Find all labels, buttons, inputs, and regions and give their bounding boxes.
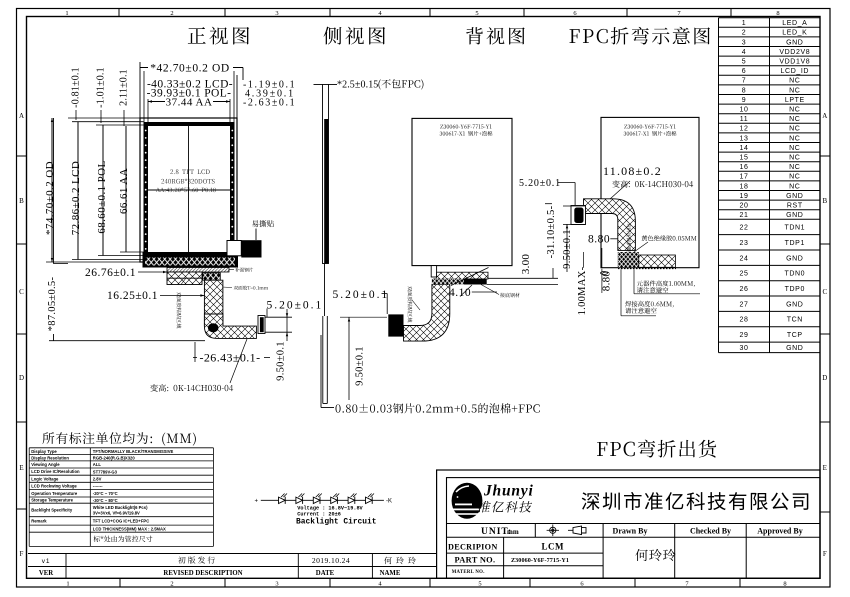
svg-text:27: 27	[740, 301, 749, 308]
svg-text:DATE: DATE	[316, 570, 335, 577]
svg-text:2.8V: 2.8V	[93, 476, 102, 481]
svg-text:30: 30	[740, 345, 749, 352]
svg-text:21: 21	[740, 212, 749, 219]
svg-text:Backlight Specificity: Backlight Specificity	[31, 508, 73, 513]
svg-text:1: 1	[742, 20, 747, 27]
svg-text:TDN1: TDN1	[784, 225, 805, 232]
svg-text:2: 2	[742, 30, 747, 37]
svg-text:3: 3	[742, 39, 747, 46]
svg-text:3V=3Vx6, Vf=6.9V/19.8V: 3V=3Vx6, Vf=6.9V/19.8V	[93, 511, 140, 516]
svg-text:ALL: ALL	[93, 462, 102, 467]
svg-text:3.00: 3.00	[520, 254, 532, 275]
svg-text:Operation Temperature: Operation Temperature	[31, 491, 78, 496]
svg-text:7: 7	[742, 78, 747, 85]
svg-text:22: 22	[740, 225, 749, 232]
svg-text:NC: NC	[789, 126, 800, 133]
svg-text:GND: GND	[786, 212, 803, 219]
svg-text:Approved By: Approved By	[757, 527, 802, 536]
svg-text:+: +	[254, 499, 258, 505]
svg-text:*87.05±0.5-: *87.05±0.5-	[47, 277, 58, 332]
svg-text:5.20±0.1: 5.20±0.1	[519, 178, 561, 189]
svg-text:Display Resolution: Display Resolution	[31, 455, 69, 460]
svg-text:NC: NC	[789, 174, 800, 181]
svg-text:2.11±0.1: 2.11±0.1	[119, 69, 130, 106]
svg-text:GND: GND	[786, 301, 803, 308]
svg-text:*74.70±0.2 OD: *74.70±0.2 OD	[44, 161, 56, 235]
svg-text:-2.63±0.1: -2.63±0.1	[243, 98, 296, 109]
svg-text:NC: NC	[789, 135, 800, 142]
svg-text:8: 8	[783, 581, 786, 588]
svg-text:Drawn By: Drawn By	[613, 527, 648, 536]
svg-text:6: 6	[742, 68, 747, 75]
svg-text:B: B	[822, 197, 827, 205]
svg-text:TDN0: TDN0	[784, 271, 805, 278]
svg-text:E: E	[19, 464, 23, 472]
svg-text:9: 9	[742, 97, 747, 104]
svg-text:NC: NC	[789, 107, 800, 114]
svg-text:*42.70±0.2 OD: *42.70±0.2 OD	[150, 63, 230, 75]
svg-text:F: F	[20, 550, 24, 558]
svg-text:NAME: NAME	[380, 570, 401, 577]
svg-text:TCP: TCP	[787, 332, 803, 339]
svg-text:D: D	[822, 374, 827, 382]
svg-text:8: 8	[742, 87, 747, 94]
svg-text:17: 17	[740, 174, 749, 181]
svg-text:-0.81±0.1: -0.81±0.1	[71, 67, 82, 108]
svg-text:NC: NC	[789, 145, 800, 152]
svg-text:24: 24	[740, 255, 749, 262]
svg-text:NC: NC	[789, 116, 800, 123]
svg-text:B: B	[19, 197, 24, 205]
svg-text:NC: NC	[789, 78, 800, 85]
svg-text:VER: VER	[39, 570, 53, 577]
svg-text:GND: GND	[786, 39, 803, 46]
svg-text:F: F	[823, 550, 827, 558]
svg-text:-K: -K	[386, 499, 392, 505]
svg-text:MATERL NO.: MATERL NO.	[452, 570, 485, 575]
svg-text:White LED Backlight(6 Pcs): White LED Backlight(6 Pcs)	[93, 505, 148, 510]
svg-text:68.60±0.1 POL: 68.60±0.1 POL	[96, 160, 108, 233]
svg-text:NC: NC	[789, 87, 800, 94]
svg-text:TCN: TCN	[787, 317, 803, 324]
svg-text:1: 1	[66, 581, 69, 588]
svg-text:v1: v1	[42, 558, 50, 565]
svg-text:Viewing Angle: Viewing Angle	[31, 462, 60, 467]
svg-text:LCD Rockwing Voltage: LCD Rockwing Voltage	[31, 483, 77, 488]
svg-text:Display Type: Display Type	[31, 449, 57, 454]
svg-text:LPTE: LPTE	[785, 97, 805, 104]
svg-text:TFT/NORMALLY BLACK/TRANSMISSIV: TFT/NORMALLY BLACK/TRANSMISSIVE	[93, 449, 174, 454]
svg-text:8.80: 8.80	[601, 271, 613, 292]
svg-text:A: A	[19, 112, 24, 120]
svg-text:1: 1	[65, 10, 68, 17]
svg-text:11.08±0.2: 11.08±0.2	[603, 164, 662, 178]
svg-text:12: 12	[740, 126, 749, 133]
svg-text:2019.10.24: 2019.10.24	[312, 556, 350, 565]
svg-text:3: 3	[275, 581, 278, 588]
svg-text:TDP0: TDP0	[785, 286, 805, 293]
svg-text:2: 2	[170, 581, 173, 588]
svg-text:NC: NC	[789, 183, 800, 190]
svg-text:9.50±0.1: 9.50±0.1	[562, 229, 573, 269]
svg-text:Logic Voltage: Logic Voltage	[31, 476, 59, 481]
svg-text:8.80: 8.80	[588, 234, 610, 246]
svg-text:19: 19	[740, 193, 749, 200]
svg-text:A: A	[822, 112, 827, 120]
svg-text:66.61 AA: 66.61 AA	[118, 168, 130, 214]
svg-text:GND: GND	[786, 255, 803, 262]
svg-text:28: 28	[740, 317, 749, 324]
svg-text:20: 20	[740, 203, 749, 210]
svg-text:5.20±0.1: 5.20±0.1	[267, 300, 324, 312]
svg-text:RGB-240(R.G.B)X320: RGB-240(R.G.B)X320	[93, 455, 136, 460]
svg-text:14: 14	[740, 145, 749, 152]
svg-text:REVISED DESCRIPTION: REVISED DESCRIPTION	[163, 570, 242, 577]
svg-text:72.86±0.2 LCD: 72.86±0.2 LCD	[70, 161, 82, 236]
svg-text:mm: mm	[507, 528, 519, 536]
svg-text:Z30060-Y6F-7715-Y1: Z30060-Y6F-7715-Y1	[511, 558, 569, 564]
svg-text:Jhunyi: Jhunyi	[483, 483, 534, 500]
svg-text:11: 11	[740, 116, 748, 123]
svg-text:Remark: Remark	[31, 519, 47, 524]
svg-text:-31.10±0.5-: -31.10±0.5-	[546, 205, 557, 258]
svg-text:VDD1V8: VDD1V8	[779, 59, 810, 66]
svg-text:LED_A: LED_A	[782, 20, 807, 27]
svg-text:PART NO.: PART NO.	[455, 556, 496, 565]
svg-text:LCD THICKNESS(MM) MAX : 2.5MA: LCD THICKNESS(MM) MAX : 2.5MAX	[93, 526, 166, 531]
svg-text:-20°C ~ 70°C: -20°C ~ 70°C	[93, 491, 118, 496]
svg-text:Current : 20±6: Current : 20±6	[297, 511, 341, 517]
svg-text:9.50±0.1: 9.50±0.1	[276, 341, 287, 381]
svg-text:TFT LCD+COG IC+LED+FPC: TFT LCD+COG IC+LED+FPC	[93, 519, 149, 524]
svg-text:LCM: LCM	[542, 542, 565, 552]
svg-text:VDD2V8: VDD2V8	[779, 49, 810, 56]
svg-text:C: C	[822, 288, 827, 296]
svg-text:NC: NC	[789, 164, 800, 171]
svg-text:29: 29	[740, 332, 749, 339]
svg-text:LCD Drive IC/Resolution: LCD Drive IC/Resolution	[31, 469, 80, 474]
svg-text:23: 23	[740, 240, 749, 247]
svg-text:25: 25	[740, 271, 749, 278]
svg-text:Backlight Circuit: Backlight Circuit	[296, 518, 377, 527]
svg-text:E: E	[823, 464, 827, 472]
svg-text:5.20±0.1: 5.20±0.1	[333, 289, 390, 301]
svg-text:37.44 AA: 37.44 AA	[166, 97, 213, 109]
svg-text:16.25±0.1: 16.25±0.1	[107, 290, 158, 302]
svg-text:15: 15	[740, 155, 749, 162]
svg-text:2: 2	[170, 10, 173, 17]
svg-text:NC: NC	[789, 155, 800, 162]
svg-text:5: 5	[475, 10, 478, 17]
svg-text:D: D	[19, 374, 24, 382]
svg-text:-30°C ~ 80°C: -30°C ~ 80°C	[93, 498, 118, 503]
svg-text:TDP1: TDP1	[785, 240, 805, 247]
svg-text:ST7789V-G3: ST7789V-G3	[93, 469, 118, 474]
svg-text:DECRIPION: DECRIPION	[448, 543, 498, 552]
svg-text:10: 10	[740, 107, 749, 114]
svg-text:18: 18	[740, 183, 749, 190]
svg-text:16: 16	[740, 164, 749, 171]
svg-text:13: 13	[740, 135, 749, 142]
svg-text:5: 5	[478, 581, 481, 588]
svg-text:Checked By: Checked By	[690, 527, 731, 536]
svg-text:C: C	[19, 288, 24, 296]
svg-text:-------: -------	[93, 484, 103, 489]
svg-text:Storage Temperature: Storage Temperature	[31, 498, 73, 503]
svg-text:GND: GND	[786, 193, 803, 200]
svg-text:8: 8	[776, 10, 779, 17]
svg-text:GND: GND	[786, 345, 803, 352]
svg-text:RST: RST	[787, 203, 803, 210]
svg-text:4: 4	[742, 49, 747, 56]
svg-text:1.00MAX-: 1.00MAX-	[577, 266, 588, 315]
svg-text:*2.5±0.15: *2.5±0.15	[337, 80, 378, 91]
svg-text:9.50±0.1: 9.50±0.1	[355, 346, 366, 386]
svg-text:LED_K: LED_K	[782, 30, 807, 37]
svg-text:26: 26	[740, 286, 749, 293]
svg-text:LCD_ID: LCD_ID	[781, 68, 810, 75]
svg-text:5: 5	[742, 59, 747, 66]
svg-text:-1.01±0.1: -1.01±0.1	[96, 67, 107, 108]
svg-text:3: 3	[275, 10, 278, 17]
svg-text:-26.43±0.1-: -26.43±0.1-	[200, 351, 261, 365]
svg-text:26.76±0.1: 26.76±0.1	[85, 267, 136, 279]
